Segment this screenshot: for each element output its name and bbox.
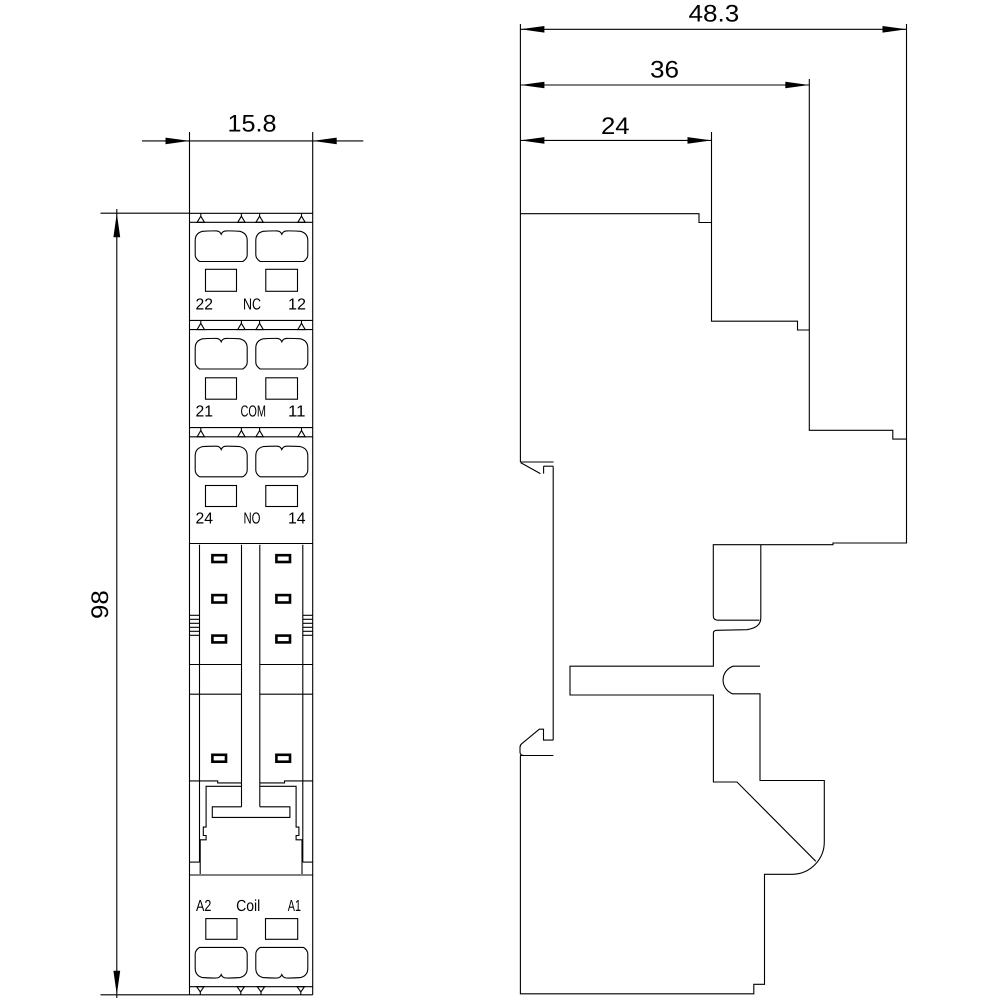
svg-text:11: 11 [288,403,306,420]
svg-text:NO: NO [244,510,261,527]
svg-text:36: 36 [650,57,679,84]
svg-text:15.8: 15.8 [228,110,277,137]
svg-text:A1: A1 [288,898,301,915]
svg-text:NC: NC [243,297,261,314]
svg-text:14: 14 [288,510,306,527]
svg-text:COM: COM [241,403,267,420]
svg-text:22: 22 [196,297,214,314]
svg-text:98: 98 [87,590,114,619]
svg-text:24: 24 [601,113,630,140]
svg-text:48.3: 48.3 [689,1,740,28]
svg-text:21: 21 [196,403,214,420]
svg-text:24: 24 [196,510,214,527]
svg-text:A2: A2 [196,898,211,915]
svg-text:Coil: Coil [236,898,260,915]
svg-text:12: 12 [288,297,306,314]
